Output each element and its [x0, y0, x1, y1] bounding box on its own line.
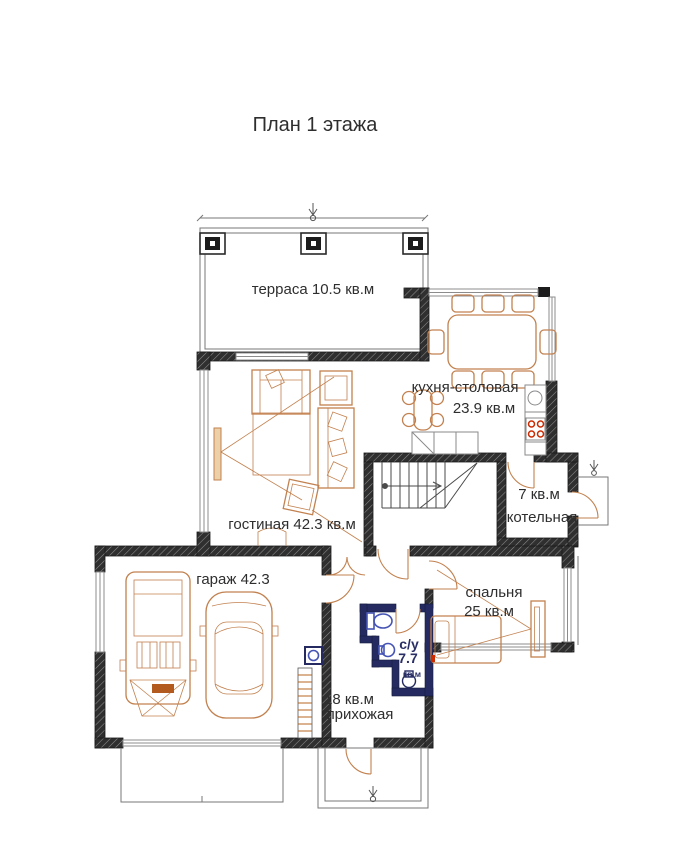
terrace-column — [200, 233, 225, 254]
label-wc-unit: кв.м — [403, 669, 421, 679]
floor-plan-page: План 1 этажа — [0, 0, 689, 850]
door-understairs — [378, 549, 408, 579]
wall-sink-icon — [379, 644, 395, 657]
label-bedroom-name: спальня — [466, 584, 523, 601]
label-kitchen-name: кухня-столовая — [412, 379, 519, 396]
armchair — [320, 371, 352, 405]
double-door-left-leaf — [329, 557, 347, 575]
car-suv — [120, 572, 196, 716]
label-garage: гараж 42.3 — [196, 571, 270, 588]
double-door-right-leaf — [347, 557, 365, 575]
breakfast-table — [403, 390, 444, 430]
label-wc-area: 7.7 — [398, 650, 418, 666]
page-title: План 1 этажа — [253, 114, 379, 136]
ladder — [298, 668, 312, 738]
benchmark-icon — [369, 786, 377, 802]
benchmark-icon — [590, 460, 598, 475]
dining-set — [428, 295, 556, 388]
sofa — [252, 370, 310, 414]
garage-contents — [120, 572, 322, 738]
coffee-table — [283, 479, 319, 515]
label-boiler-area: 7 кв.м — [518, 486, 560, 503]
kitchen-sink-icon — [528, 391, 542, 405]
dimension-line-top — [197, 203, 428, 221]
tv-icon — [214, 377, 334, 500]
label-boiler-name: котельная — [507, 509, 578, 526]
bed — [431, 616, 501, 663]
sectional-sofa — [318, 408, 354, 488]
label-terrace: терраса 10.5 кв.м — [252, 281, 374, 298]
label-hall-name: прихожая — [327, 706, 394, 723]
toilet-icon — [367, 613, 392, 629]
door-bathroom — [396, 609, 420, 633]
stove-icon — [526, 418, 545, 440]
terrace-column — [301, 233, 326, 254]
boiler-landing — [578, 460, 608, 525]
door-garage — [326, 575, 354, 603]
door-entrance — [346, 749, 371, 774]
garage-apron — [121, 748, 283, 802]
entrance-porch — [318, 748, 428, 808]
car-sedan — [200, 592, 278, 718]
terrace-column — [403, 233, 428, 254]
label-bedroom-area: 25 кв.м — [464, 603, 514, 620]
door-boiler — [508, 462, 534, 488]
label-living: гостиная 42.3 кв.м — [228, 516, 356, 533]
door-bedroom — [429, 561, 457, 589]
staircase — [382, 462, 477, 508]
label-kitchen-area: 23.9 кв.м — [453, 400, 515, 417]
rug — [253, 413, 310, 475]
water-heater-icon — [305, 647, 322, 664]
floor-plan-drawing: План 1 этажа — [0, 0, 689, 850]
